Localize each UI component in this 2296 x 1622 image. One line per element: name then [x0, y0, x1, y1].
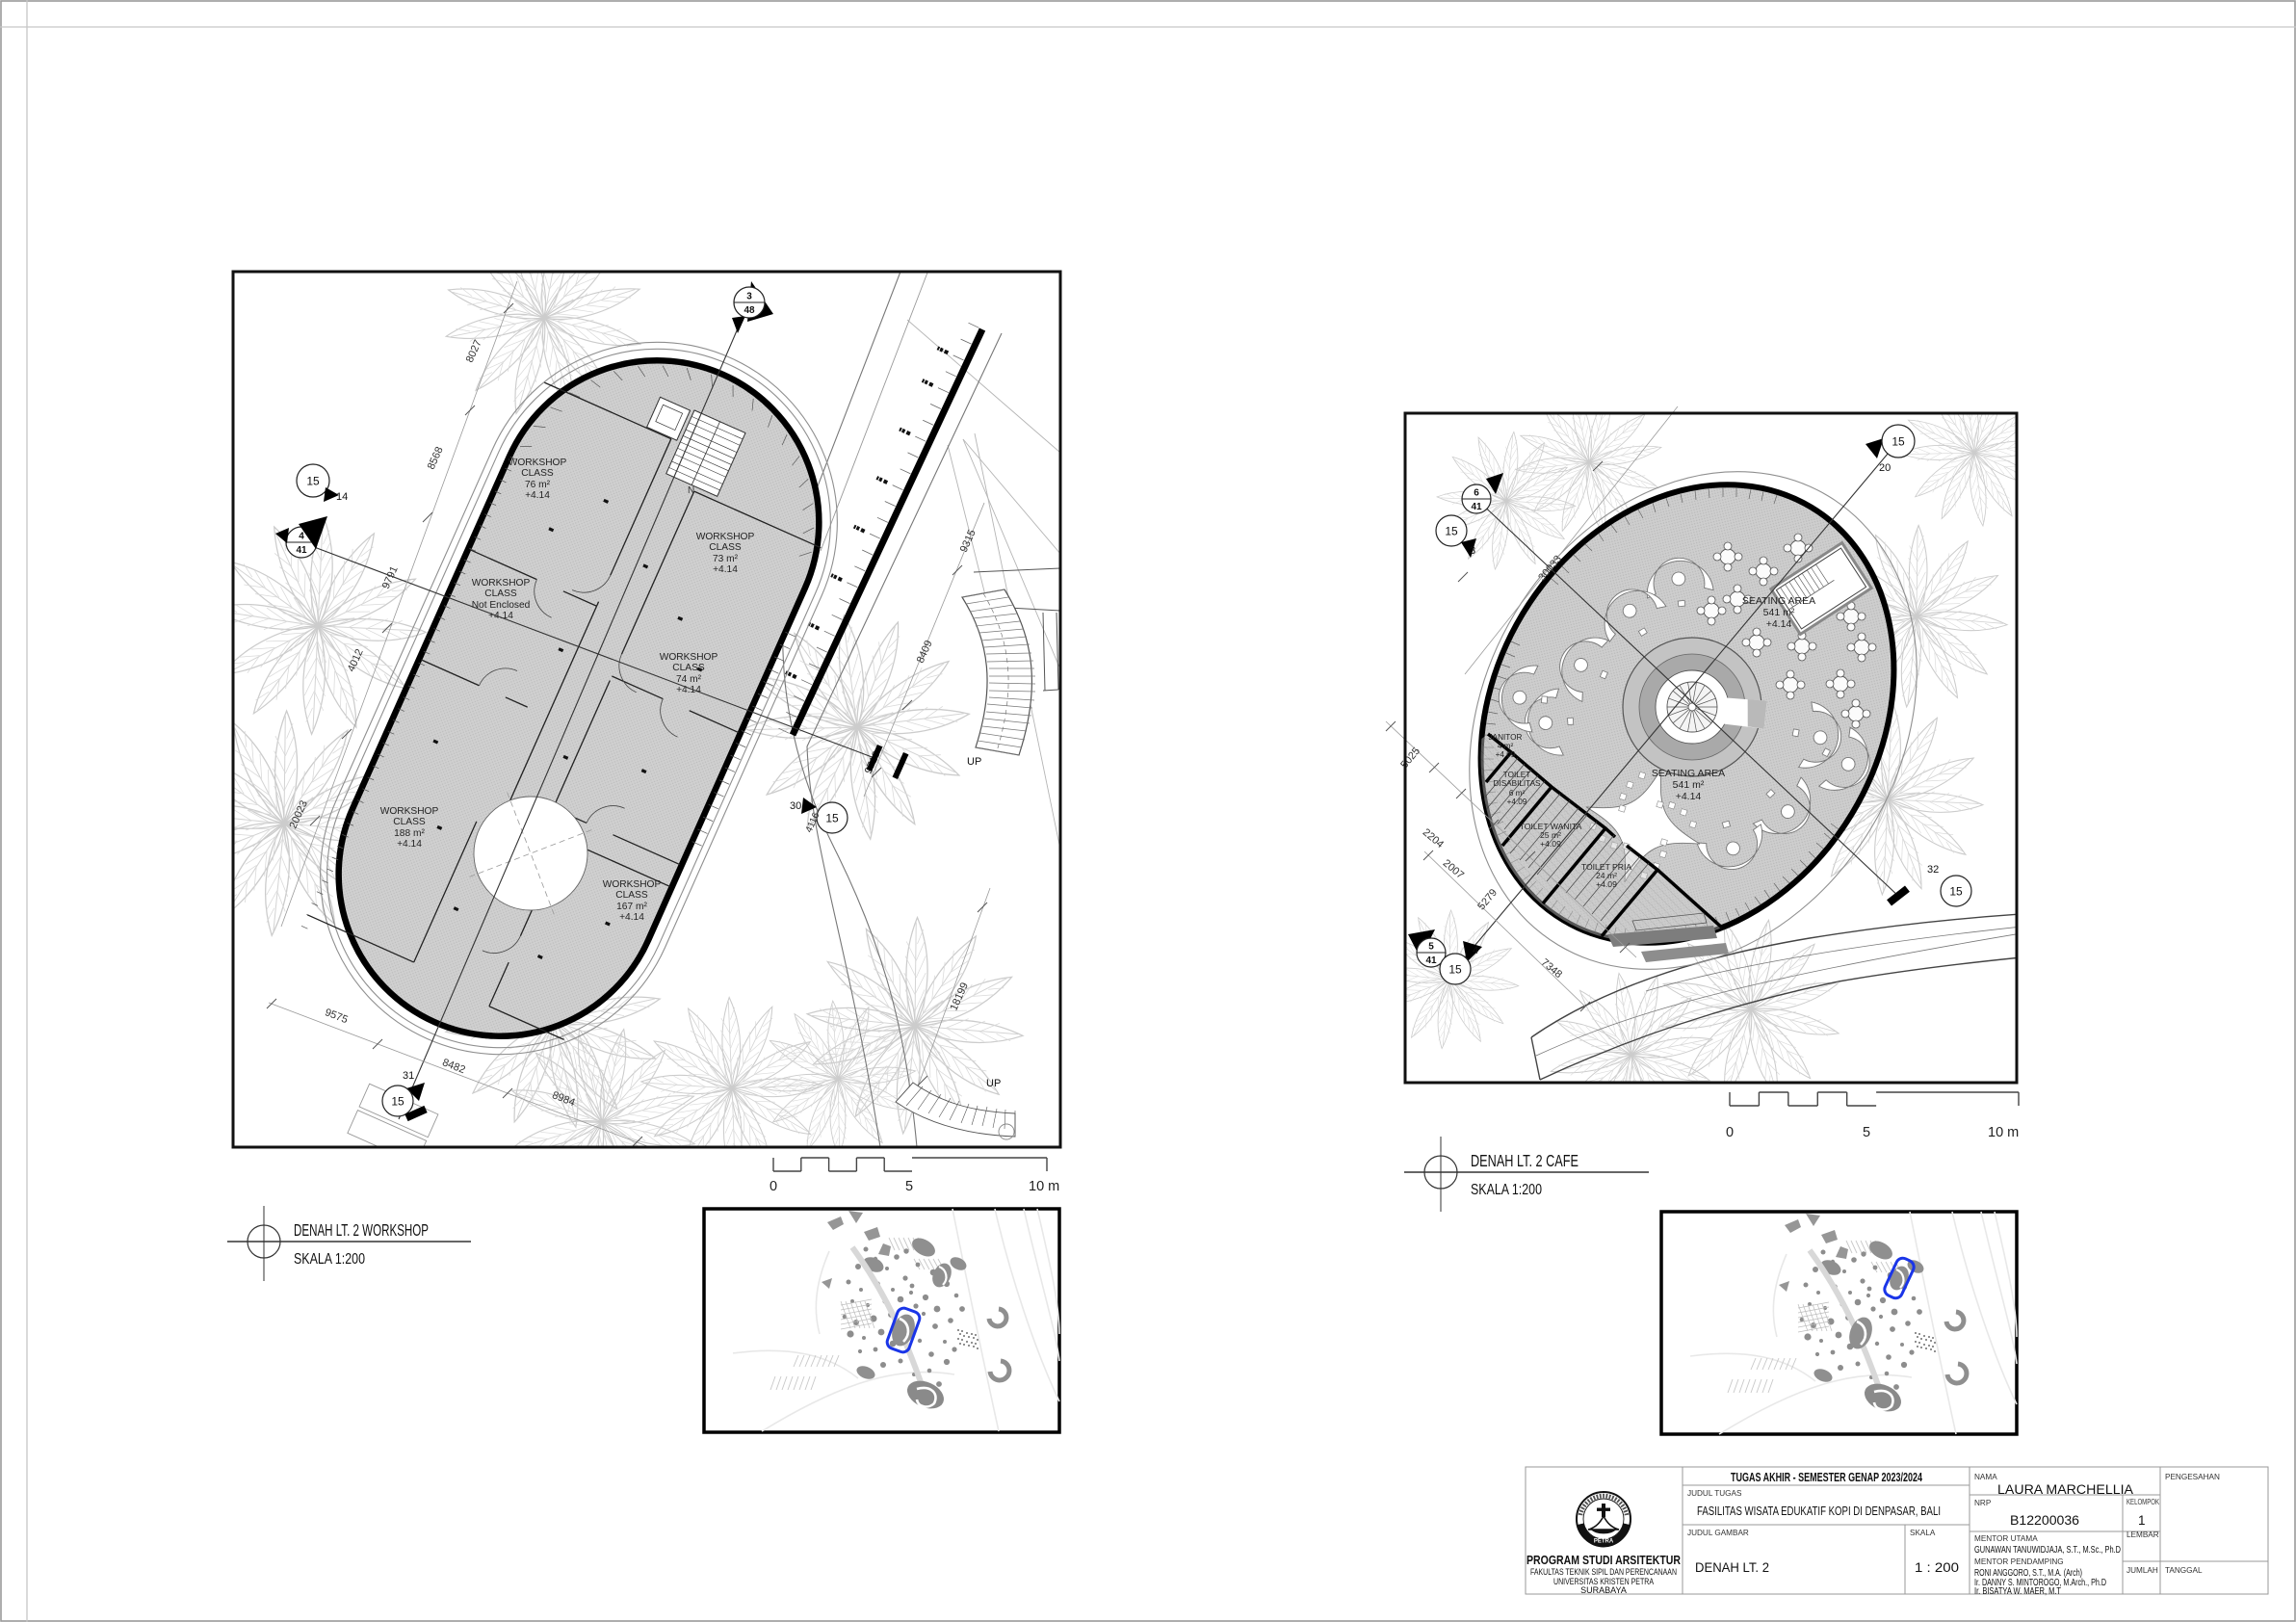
- svg-text:5: 5: [905, 1179, 913, 1194]
- svg-text:48: 48: [744, 305, 755, 316]
- svg-text:SKALA: SKALA: [1910, 1529, 1936, 1537]
- svg-text:SKALA 1:200: SKALA 1:200: [1471, 1182, 1542, 1198]
- svg-text:+4.14: +4.14: [713, 564, 738, 575]
- svg-text:WORKSHOP: WORKSHOP: [509, 458, 567, 468]
- svg-text:LAURA MARCHELLIA: LAURA MARCHELLIA: [1997, 1482, 2133, 1497]
- svg-text:3: 3: [746, 292, 752, 302]
- svg-text:4: 4: [299, 532, 304, 542]
- svg-text:PENGESAHAN: PENGESAHAN: [2165, 1473, 2220, 1481]
- svg-text:DISABILITAS: DISABILITAS: [1494, 779, 1542, 788]
- svg-text:WORKSHOP: WORKSHOP: [603, 879, 662, 890]
- svg-text:Ir. BISATYA W. MAER, M.T: Ir. BISATYA W. MAER, M.T: [1974, 1586, 2062, 1597]
- svg-text:0: 0: [1726, 1125, 1734, 1140]
- svg-text:+4.09: +4.09: [1507, 798, 1527, 806]
- svg-text:KELOMPOK: KELOMPOK: [2126, 1498, 2159, 1506]
- svg-text:CLASS: CLASS: [672, 663, 705, 673]
- svg-text:B12200036: B12200036: [2010, 1513, 2079, 1528]
- svg-text:10 m: 10 m: [1029, 1179, 1059, 1194]
- svg-text:JUMLAH: JUMLAH: [2126, 1566, 2158, 1575]
- svg-text:LEMBAR: LEMBAR: [2126, 1530, 2159, 1539]
- svg-text:15: 15: [306, 475, 320, 488]
- svg-text:FASILITAS WISATA EDUKATIF KOPI: FASILITAS WISATA EDUKATIF KOPI DI DENPAS…: [1697, 1504, 1941, 1518]
- svg-text:10 m: 10 m: [1988, 1125, 2019, 1140]
- svg-text:30: 30: [790, 800, 801, 812]
- svg-text:167 m²: 167 m²: [616, 902, 647, 912]
- svg-text:CLASS: CLASS: [521, 468, 554, 479]
- svg-text:DENAH LT. 2: DENAH LT. 2: [1695, 1559, 1769, 1575]
- svg-text:15: 15: [1892, 435, 1905, 449]
- svg-text:41: 41: [1425, 955, 1437, 966]
- svg-text:DENAH LT. 2 WORKSHOP: DENAH LT. 2 WORKSHOP: [294, 1220, 429, 1240]
- svg-text:Not Enclosed: Not Enclosed: [472, 600, 531, 611]
- svg-text:JUDUL TUGAS: JUDUL TUGAS: [1687, 1489, 1742, 1498]
- svg-text:SEATING AREA: SEATING AREA: [1742, 595, 1815, 607]
- svg-text:32: 32: [1927, 864, 1939, 876]
- svg-text:3: 3: [1470, 545, 1475, 557]
- svg-text:4: 4: [1473, 945, 1478, 956]
- svg-text:+4.14: +4.14: [525, 490, 550, 501]
- svg-text:WORKSHOP: WORKSHOP: [472, 578, 531, 589]
- svg-text:15: 15: [391, 1095, 404, 1109]
- svg-text:CLASS: CLASS: [709, 542, 742, 553]
- svg-text:1 : 200: 1 : 200: [1915, 1560, 1959, 1575]
- svg-text:+4.14: +4.14: [488, 611, 513, 621]
- svg-text:NRP: NRP: [1974, 1499, 1992, 1507]
- svg-text:+4.14: +4.14: [1676, 791, 1702, 802]
- svg-text:20: 20: [1879, 462, 1891, 474]
- svg-text:CLASS: CLASS: [615, 890, 648, 901]
- svg-text:SURABAYA: SURABAYA: [1580, 1585, 1627, 1595]
- svg-text:JUDUL GAMBAR: JUDUL GAMBAR: [1687, 1529, 1749, 1537]
- svg-text:0: 0: [770, 1179, 777, 1194]
- svg-text:41: 41: [1471, 502, 1482, 512]
- svg-text:+4.09: +4.09: [1496, 750, 1516, 759]
- svg-text:541 m²: 541 m²: [1673, 779, 1705, 791]
- svg-text:73 m²: 73 m²: [713, 554, 739, 564]
- svg-text:SKALA 1:200: SKALA 1:200: [294, 1251, 365, 1268]
- svg-text:NAMA: NAMA: [1974, 1473, 1997, 1481]
- svg-text:WORKSHOP: WORKSHOP: [660, 652, 718, 663]
- svg-text:TUGAS AKHIR - SEMESTER GENAP 2: TUGAS AKHIR - SEMESTER GENAP 2023/2024: [1731, 1471, 1922, 1484]
- svg-text:15: 15: [825, 812, 839, 825]
- svg-text:+4.14: +4.14: [619, 912, 644, 923]
- svg-text:WORKSHOP: WORKSHOP: [380, 806, 439, 817]
- svg-text:GUNAWAN TANUWIDJAJA, S.T., M.S: GUNAWAN TANUWIDJAJA, S.T., M.Sc., Ph.D: [1974, 1545, 2121, 1556]
- svg-text:N: N: [688, 485, 694, 496]
- svg-text:JANITOR: JANITOR: [1489, 733, 1523, 742]
- svg-text:WORKSHOP: WORKSHOP: [696, 532, 755, 542]
- svg-text:541 m²: 541 m²: [1763, 607, 1795, 618]
- svg-text:UP: UP: [967, 756, 981, 768]
- svg-text:UP: UP: [986, 1078, 1001, 1089]
- svg-text:14: 14: [336, 491, 348, 503]
- svg-text:CLASS: CLASS: [484, 589, 517, 599]
- svg-text:4 m²: 4 m²: [1498, 742, 1514, 750]
- svg-text:FAKULTAS TEKNIK SIPIL DAN PERE: FAKULTAS TEKNIK SIPIL DAN PERENCANAAN: [1530, 1567, 1677, 1577]
- svg-text:6 m²: 6 m²: [1509, 789, 1526, 798]
- svg-text:DENAH LT. 2 CAFE: DENAH LT. 2 CAFE: [1471, 1151, 1578, 1170]
- svg-text:41: 41: [296, 545, 307, 556]
- svg-text:MENTOR UTAMA: MENTOR UTAMA: [1974, 1534, 2038, 1543]
- svg-text:74 m²: 74 m²: [676, 674, 702, 685]
- svg-text:5: 5: [1428, 942, 1434, 953]
- svg-text:+4.14: +4.14: [676, 685, 701, 695]
- svg-text:+4.09: +4.09: [1596, 879, 1617, 889]
- svg-text:TOILET: TOILET: [1503, 771, 1531, 779]
- svg-text:15: 15: [1448, 963, 1462, 977]
- svg-text:5: 5: [1863, 1125, 1870, 1140]
- svg-text:188 m²: 188 m²: [394, 828, 425, 839]
- svg-text:15: 15: [1445, 525, 1458, 538]
- svg-text:PROGRAM STUDI ARSITEKTUR: PROGRAM STUDI ARSITEKTUR: [1526, 1554, 1681, 1567]
- svg-text:+4.14: +4.14: [1766, 618, 1792, 630]
- svg-text:SEATING AREA: SEATING AREA: [1652, 768, 1725, 779]
- svg-text:6: 6: [1474, 488, 1479, 499]
- svg-text:PETRA: PETRA: [1594, 1539, 1614, 1545]
- svg-text:31: 31: [403, 1070, 414, 1082]
- svg-text:15: 15: [1949, 885, 1963, 899]
- svg-text:CLASS: CLASS: [393, 817, 426, 827]
- svg-text:TANGGAL: TANGGAL: [2165, 1566, 2203, 1575]
- svg-text:+4.14: +4.14: [397, 839, 422, 850]
- svg-text:76 m²: 76 m²: [525, 480, 551, 490]
- svg-text:MENTOR PENDAMPING: MENTOR PENDAMPING: [1974, 1557, 2064, 1566]
- svg-text:1: 1: [2138, 1513, 2146, 1528]
